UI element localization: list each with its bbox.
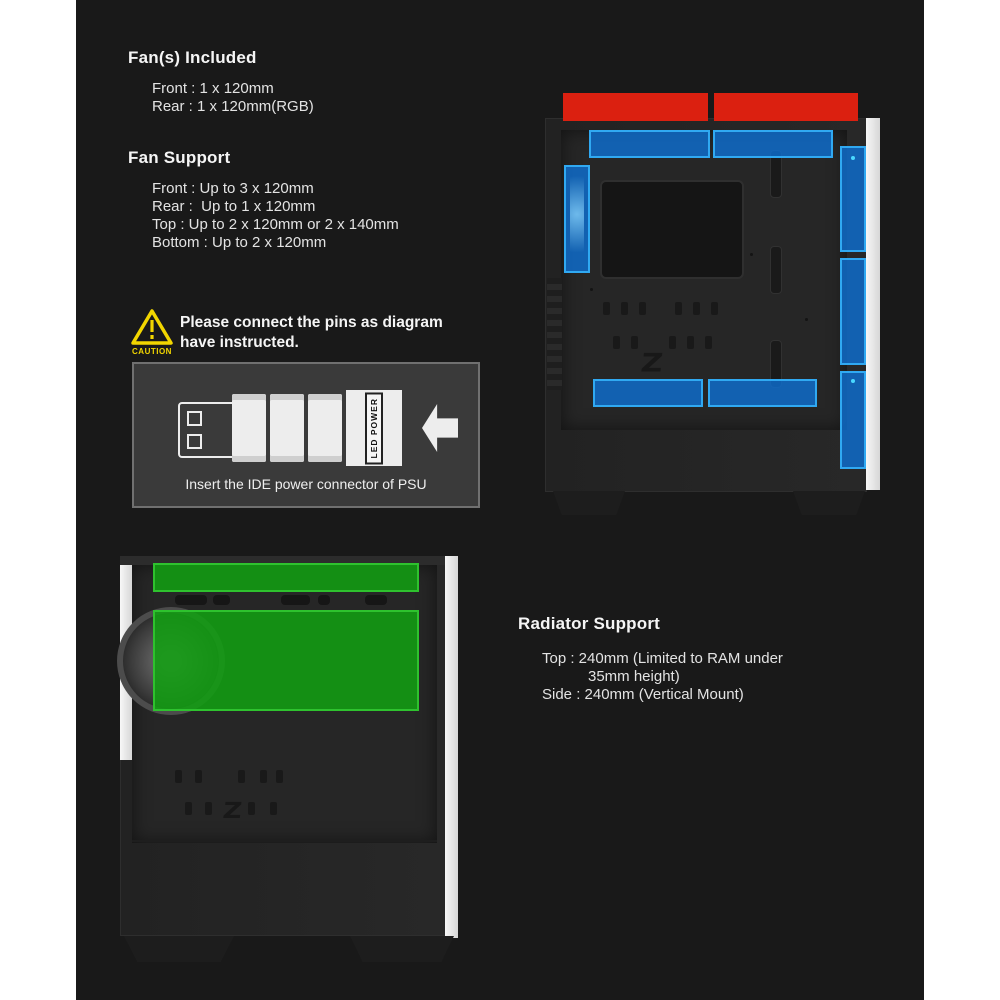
mount-slot	[711, 302, 718, 315]
top-fan-zone-blue-2	[713, 130, 833, 158]
mount-slot	[675, 302, 682, 315]
mount-slot	[175, 770, 182, 783]
case-foot	[793, 491, 865, 515]
front-panel-strip	[866, 118, 880, 490]
shroud-edge	[132, 840, 437, 842]
connector-caption: Insert the IDE power connector of PSU	[134, 476, 478, 492]
molex-plug	[178, 402, 236, 458]
cable-slot	[770, 246, 782, 294]
pci-slot-area	[547, 278, 562, 390]
connector-pin	[187, 434, 202, 449]
fans-included-rear: Rear : 1 x 120mm(RGB)	[152, 98, 314, 116]
vent-slot	[213, 595, 230, 605]
brand-logo: Z	[639, 349, 664, 379]
mount-slot	[639, 302, 646, 315]
case-foot	[124, 936, 234, 962]
caution-triangle-icon	[130, 308, 174, 348]
side-radiator-zone-green	[153, 610, 419, 711]
mount-slot	[687, 336, 694, 349]
fan-support-top: Top : Up to 2 x 120mm or 2 x 140mm	[152, 216, 399, 234]
mount-slot	[260, 770, 267, 783]
bottom-fan-zone-blue-1	[593, 379, 703, 407]
rgb-fan-glow	[570, 171, 584, 267]
connector-segment	[270, 394, 304, 462]
brand-logo: Z	[221, 798, 243, 824]
case-foot	[350, 936, 454, 962]
vent-slot	[365, 595, 387, 605]
fan-support-rear: Rear : Up to 1 x 120mm	[152, 198, 315, 216]
standoff-dot	[590, 288, 593, 291]
mount-slot	[195, 770, 202, 783]
mount-slot	[705, 336, 712, 349]
vent-slot	[175, 595, 207, 605]
connector-pin	[187, 411, 202, 426]
radiator-support-top-line2: 35mm height)	[588, 668, 680, 686]
mount-slot	[248, 802, 255, 815]
mount-slot	[631, 336, 638, 349]
caution-message-line1: Please connect the pins as diagram	[180, 314, 443, 332]
front-fan-zone-blue-1	[840, 146, 866, 252]
led-power-label: LED POWER	[365, 392, 383, 464]
case-diagram-radiator-zones: Z	[112, 550, 458, 965]
mount-slot	[669, 336, 676, 349]
fan-support-front: Front : Up to 3 x 120mm	[152, 180, 314, 198]
connector-segment	[232, 394, 266, 462]
standoff-dot	[805, 318, 808, 321]
mount-slot	[270, 802, 277, 815]
fans-included-front: Front : 1 x 120mm	[152, 80, 274, 98]
case-window-cutout	[600, 180, 744, 279]
radiator-support-title: Radiator Support	[518, 614, 660, 634]
screw-dot	[851, 379, 855, 383]
mount-slot	[621, 302, 628, 315]
radiator-support-top-line1: Top : 240mm (Limited to RAM under	[542, 650, 783, 668]
spec-infographic: Fan(s) Included Front : 1 x 120mm Rear :…	[0, 0, 1000, 1000]
front-panel-strip	[445, 556, 458, 938]
case-foot	[553, 491, 625, 515]
vent-slot	[318, 595, 330, 605]
fans-included-title: Fan(s) Included	[128, 48, 257, 68]
mount-slot	[205, 802, 212, 815]
mount-slot	[276, 770, 283, 783]
caution-badge: CAUTION	[130, 347, 174, 356]
top-radiator-zone-red-1	[563, 93, 708, 121]
case-diagram-fan-zones: Z	[545, 88, 881, 520]
fan-support-title: Fan Support	[128, 148, 230, 168]
mount-slot	[185, 802, 192, 815]
fan-support-bottom: Bottom : Up to 2 x 120mm	[152, 234, 326, 252]
insert-direction-arrow-icon	[422, 404, 458, 452]
front-fan-zone-blue-3	[840, 371, 866, 469]
top-radiator-zone-green	[153, 563, 419, 592]
mount-slot	[603, 302, 610, 315]
top-radiator-zone-red-2	[714, 93, 858, 121]
screw-dot	[851, 156, 855, 160]
vent-slot	[281, 595, 310, 605]
mount-slot	[693, 302, 700, 315]
rear-fan-zone-blue	[564, 165, 590, 273]
mount-slot	[238, 770, 245, 783]
connector-instruction-box: LED POWER Insert the IDE power connector…	[132, 362, 480, 508]
radiator-support-side: Side : 240mm (Vertical Mount)	[542, 686, 744, 704]
mount-slot	[613, 336, 620, 349]
front-fan-zone-blue-2	[840, 258, 866, 365]
connector-segment	[308, 394, 342, 462]
bottom-fan-zone-blue-2	[708, 379, 817, 407]
top-fan-zone-blue-1	[589, 130, 710, 158]
led-power-connector: LED POWER	[346, 390, 402, 466]
caution-message-line2: have instructed.	[180, 334, 299, 352]
standoff-dot	[750, 253, 753, 256]
